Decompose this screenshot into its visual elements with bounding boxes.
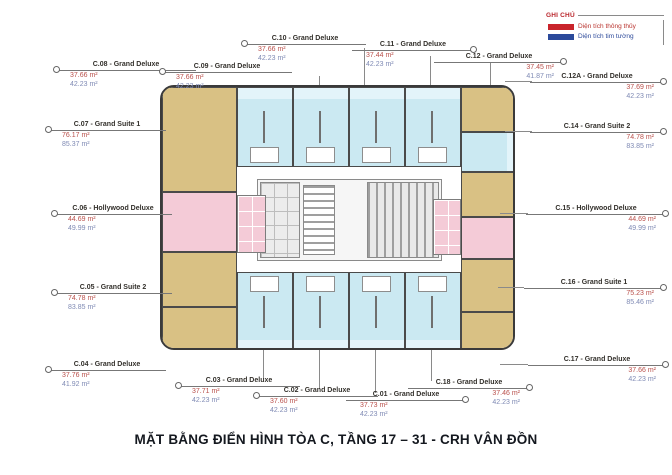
unit-label: C.06 - Hollywood Deluxe xyxy=(54,204,172,215)
legend-items: Diện tích thông thủy Diện tích tim tường xyxy=(546,20,664,45)
legend-rule xyxy=(578,15,664,16)
area-clear: 37.46 m² xyxy=(408,389,530,398)
unit-c09 xyxy=(293,87,349,167)
unit-label: C.14 - Grand Suite 2 xyxy=(530,122,664,133)
unit-label: C.04 - Grand Deluxe xyxy=(48,360,166,371)
leader-c12a xyxy=(505,81,532,82)
callout-c16: C.16 - Grand Suite 1 75.23 m² 85.46 m² xyxy=(524,278,664,307)
legend-item-gross-area: Diện tích tim tường xyxy=(548,33,659,40)
unit-label: C.12A - Grand Deluxe xyxy=(530,72,664,83)
callout-c12a: C.12A - Grand Deluxe 37.69 m² 42.23 m² xyxy=(530,72,664,101)
legend-label-clear: Diện tích thông thủy xyxy=(578,23,636,30)
unit-c03 xyxy=(237,272,293,350)
legend: GHI CHÚ Diện tích thông thủy Diện tích t… xyxy=(546,12,664,45)
unit-label: C.16 - Grand Suite 1 xyxy=(524,278,664,289)
area-gross: 83.85 m² xyxy=(530,142,664,151)
unit-c15 xyxy=(461,217,515,259)
callout-c04: C.04 - Grand Deluxe 37.76 m² 41.92 m² xyxy=(48,360,166,389)
unit-c06 xyxy=(162,192,237,252)
unit-c10 xyxy=(349,87,405,167)
unit-label: C.09 - Grand Deluxe xyxy=(162,62,292,73)
area-gross: 49.99 m² xyxy=(54,224,172,233)
legend-header: GHI CHÚ xyxy=(546,12,664,19)
area-clear: 44.69 m² xyxy=(526,215,666,224)
area-clear: 37.66 m² xyxy=(162,73,292,82)
leader-c03 xyxy=(263,350,264,379)
unit-c16 xyxy=(461,259,515,312)
unit-label: C.11 - Grand Deluxe xyxy=(352,40,474,51)
unit-label: C.10 - Grand Deluxe xyxy=(244,34,366,45)
area-gross: 85.46 m² xyxy=(524,298,664,307)
area-clear: 37.45 m² xyxy=(434,63,564,72)
leader-c18 xyxy=(431,350,432,381)
leader-c09 xyxy=(319,76,320,85)
area-clear: 75.23 m² xyxy=(524,289,664,298)
area-clear: 37.69 m² xyxy=(530,83,664,92)
unit-label: C.05 - Grand Suite 2 xyxy=(54,283,172,294)
callout-c10: C.10 - Grand Deluxe 37.66 m² 42.23 m² xyxy=(244,34,366,63)
area-clear: 74.78 m² xyxy=(54,294,172,303)
callout-c17: C.17 - Grand Deluxe 37.66 m² 42.23 m² xyxy=(528,355,666,384)
red-swatch xyxy=(548,24,574,30)
unit-c17 xyxy=(461,312,515,350)
area-clear: 37.76 m² xyxy=(48,371,166,380)
callout-c15: C.15 - Hollywood Deluxe 44.69 m² 49.99 m… xyxy=(526,204,666,233)
area-gross: 85.37 m² xyxy=(48,140,166,149)
area-gross: 42.23 m² xyxy=(530,92,664,101)
area-gross: 42.23 m² xyxy=(528,375,666,384)
unit-c05 xyxy=(162,252,237,307)
area-gross: 42.23 m² xyxy=(408,398,530,407)
callout-c09: C.09 - Grand Deluxe 37.66 m² 42.23 m² xyxy=(162,62,292,91)
unit-c04 xyxy=(162,307,237,350)
leader-c02 xyxy=(319,350,320,389)
elevator-bank xyxy=(367,182,439,258)
leader-c17 xyxy=(500,364,528,365)
callout-c06: C.06 - Hollywood Deluxe 44.69 m² 49.99 m… xyxy=(54,204,172,233)
area-gross: 41.92 m² xyxy=(48,380,166,389)
callout-c05: C.05 - Grand Suite 2 74.78 m² 83.85 m² xyxy=(54,283,172,312)
floor-plan xyxy=(160,85,515,350)
unit-c11 xyxy=(405,87,461,167)
leader-c16 xyxy=(498,287,524,288)
area-clear: 74.78 m² xyxy=(530,133,664,142)
legend-label-gross: Diện tích tim tường xyxy=(578,33,634,40)
area-gross: 42.23 m² xyxy=(346,410,466,419)
floorplan-sheet: GHI CHÚ Diện tích thông thủy Diện tích t… xyxy=(0,0,672,475)
unit-c12a xyxy=(461,132,515,172)
leader-c14 xyxy=(505,131,532,132)
area-gross: 42.23 m² xyxy=(162,82,292,91)
unit-c02 xyxy=(293,272,349,350)
area-gross: 42.23 m² xyxy=(244,54,366,63)
unit-c07 xyxy=(162,87,237,192)
callout-c07: C.07 - Grand Suite 1 76.17 m² 85.37 m² xyxy=(48,120,166,149)
unit-label: C.18 - Grand Deluxe xyxy=(408,378,530,389)
unit-c08 xyxy=(237,87,293,167)
area-clear: 76.17 m² xyxy=(48,131,166,140)
area-clear: 37.66 m² xyxy=(528,366,666,375)
unit-label: C.15 - Hollywood Deluxe xyxy=(526,204,666,215)
legend-item-clear-area: Diện tích thông thủy xyxy=(548,23,659,30)
area-gross: 83.85 m² xyxy=(54,303,172,312)
legend-title: GHI CHÚ xyxy=(546,12,575,19)
unit-label: C.12 - Grand Deluxe xyxy=(434,52,564,63)
stairwell xyxy=(303,185,335,255)
area-clear: 37.66 m² xyxy=(244,45,366,54)
unit-label: C.07 - Grand Suite 1 xyxy=(48,120,166,131)
area-gross: 49.99 m² xyxy=(526,224,666,233)
hollywood-annex-right xyxy=(433,199,461,255)
area-clear: 44.69 m² xyxy=(54,215,172,224)
blue-swatch xyxy=(548,34,574,40)
callout-c14: C.14 - Grand Suite 2 74.78 m² 83.85 m² xyxy=(530,122,664,151)
leader-c15 xyxy=(500,213,528,214)
unit-c18 xyxy=(405,272,461,350)
sheet-title: MẶT BẰNG ĐIỂN HÌNH TÒA C, TẦNG 17 – 31 -… xyxy=(0,432,672,447)
unit-c01 xyxy=(349,272,405,350)
unit-c14 xyxy=(461,172,515,217)
hollywood-annex-left xyxy=(237,195,266,253)
callout-c18: C.18 - Grand Deluxe 37.46 m² 42.23 m² xyxy=(408,378,530,407)
unit-c12 xyxy=(461,87,515,132)
unit-label: C.17 - Grand Deluxe xyxy=(528,355,666,366)
service-rooms xyxy=(260,182,300,258)
